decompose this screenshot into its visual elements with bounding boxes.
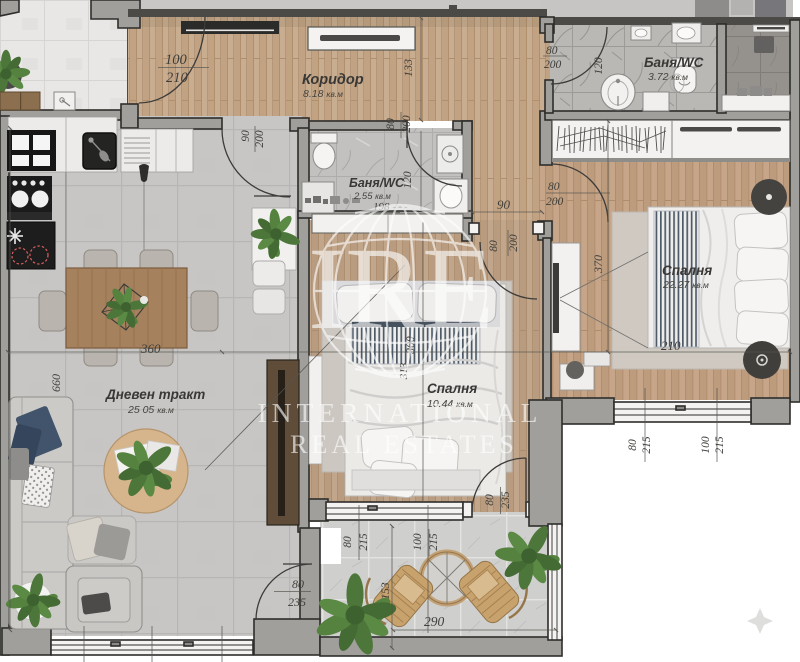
svg-text:INTERNATIONAL: INTERNATIONAL [258, 397, 543, 428]
svg-text:Дневен тракт: Дневен тракт [105, 387, 205, 402]
svg-text:100: 100 [412, 533, 424, 551]
svg-text:90: 90 [497, 197, 511, 212]
svg-text:215: 215 [714, 436, 726, 454]
svg-text:200: 200 [546, 196, 564, 208]
svg-text:80: 80 [292, 577, 304, 591]
svg-text:80: 80 [546, 45, 558, 57]
svg-text:360: 360 [140, 341, 161, 356]
svg-text:120: 120 [593, 57, 605, 75]
svg-text:200: 200 [401, 115, 413, 133]
svg-text:Спалня: Спалня [662, 263, 712, 278]
svg-text:215: 215 [358, 533, 370, 551]
svg-text:80: 80 [385, 118, 397, 130]
svg-text:IRE: IRE [308, 223, 492, 354]
svg-text:210: 210 [166, 70, 189, 86]
svg-text:8.18 кв.м: 8.18 кв.м [303, 88, 343, 100]
svg-text:120: 120 [402, 171, 414, 189]
svg-text:200: 200 [508, 234, 520, 252]
svg-text:235: 235 [500, 491, 512, 509]
svg-text:215: 215 [641, 436, 653, 454]
svg-text:Спалня: Спалня [427, 381, 477, 396]
svg-text:Коридор: Коридор [302, 72, 364, 88]
svg-text:Баня/WC: Баня/WC [644, 55, 704, 70]
svg-text:660: 660 [49, 374, 63, 392]
svg-text:80: 80 [627, 439, 639, 451]
svg-text:80: 80 [342, 536, 354, 548]
svg-text:22.27 кв.м: 22.27 кв.м [662, 279, 709, 291]
svg-text:200: 200 [544, 59, 562, 71]
svg-text:290: 290 [424, 614, 445, 629]
svg-text:235: 235 [288, 595, 306, 609]
svg-text:90: 90 [240, 130, 252, 142]
svg-text:215: 215 [428, 533, 440, 551]
svg-text:80: 80 [548, 181, 560, 193]
svg-text:370: 370 [591, 255, 605, 274]
svg-text:3.72 кв.м: 3.72 кв.м [648, 71, 688, 83]
svg-text:80: 80 [484, 494, 496, 506]
svg-text:133: 133 [401, 59, 415, 77]
svg-text:100: 100 [700, 436, 712, 454]
svg-text:25 05 кв.м: 25 05 кв.м [127, 404, 174, 416]
svg-text:Баня/WC: Баня/WC [349, 176, 405, 190]
svg-text:REAL ESTATES: REAL ESTATES [290, 430, 518, 459]
svg-text:153: 153 [380, 582, 392, 600]
svg-text:100: 100 [165, 52, 188, 68]
svg-text:210: 210 [661, 338, 681, 353]
svg-text:200: 200 [254, 130, 266, 148]
